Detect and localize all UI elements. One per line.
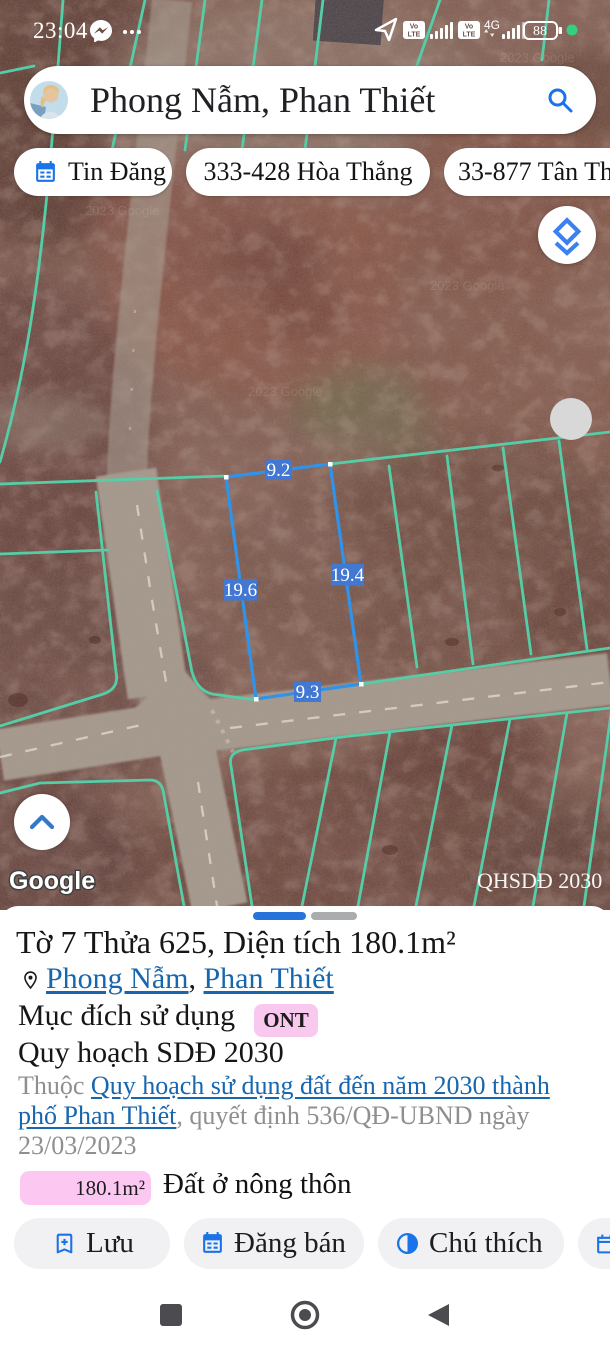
svg-text:9.3: 9.3 xyxy=(296,682,320,703)
svg-text:LTE: LTE xyxy=(408,32,421,39)
svg-text:88: 88 xyxy=(533,24,547,39)
svg-text:19.6: 19.6 xyxy=(224,580,257,601)
svg-text:Vo: Vo xyxy=(465,24,473,31)
svg-text:LTE: LTE xyxy=(463,32,476,39)
svg-text:Google: Google xyxy=(9,867,95,895)
svg-text:2023 Google: 2023 Google xyxy=(248,384,322,399)
svg-text:Vo: Vo xyxy=(410,24,418,31)
svg-text:19.4: 19.4 xyxy=(331,565,365,586)
svg-text:9.2: 9.2 xyxy=(267,460,291,481)
svg-text:QHSDĐ 2030: QHSDĐ 2030 xyxy=(477,868,602,893)
svg-text:2023 Google: 2023 Google xyxy=(500,50,574,65)
svg-text:2023 Google: 2023 Google xyxy=(430,278,504,293)
svg-text:2023 Google: 2023 Google xyxy=(85,203,159,218)
